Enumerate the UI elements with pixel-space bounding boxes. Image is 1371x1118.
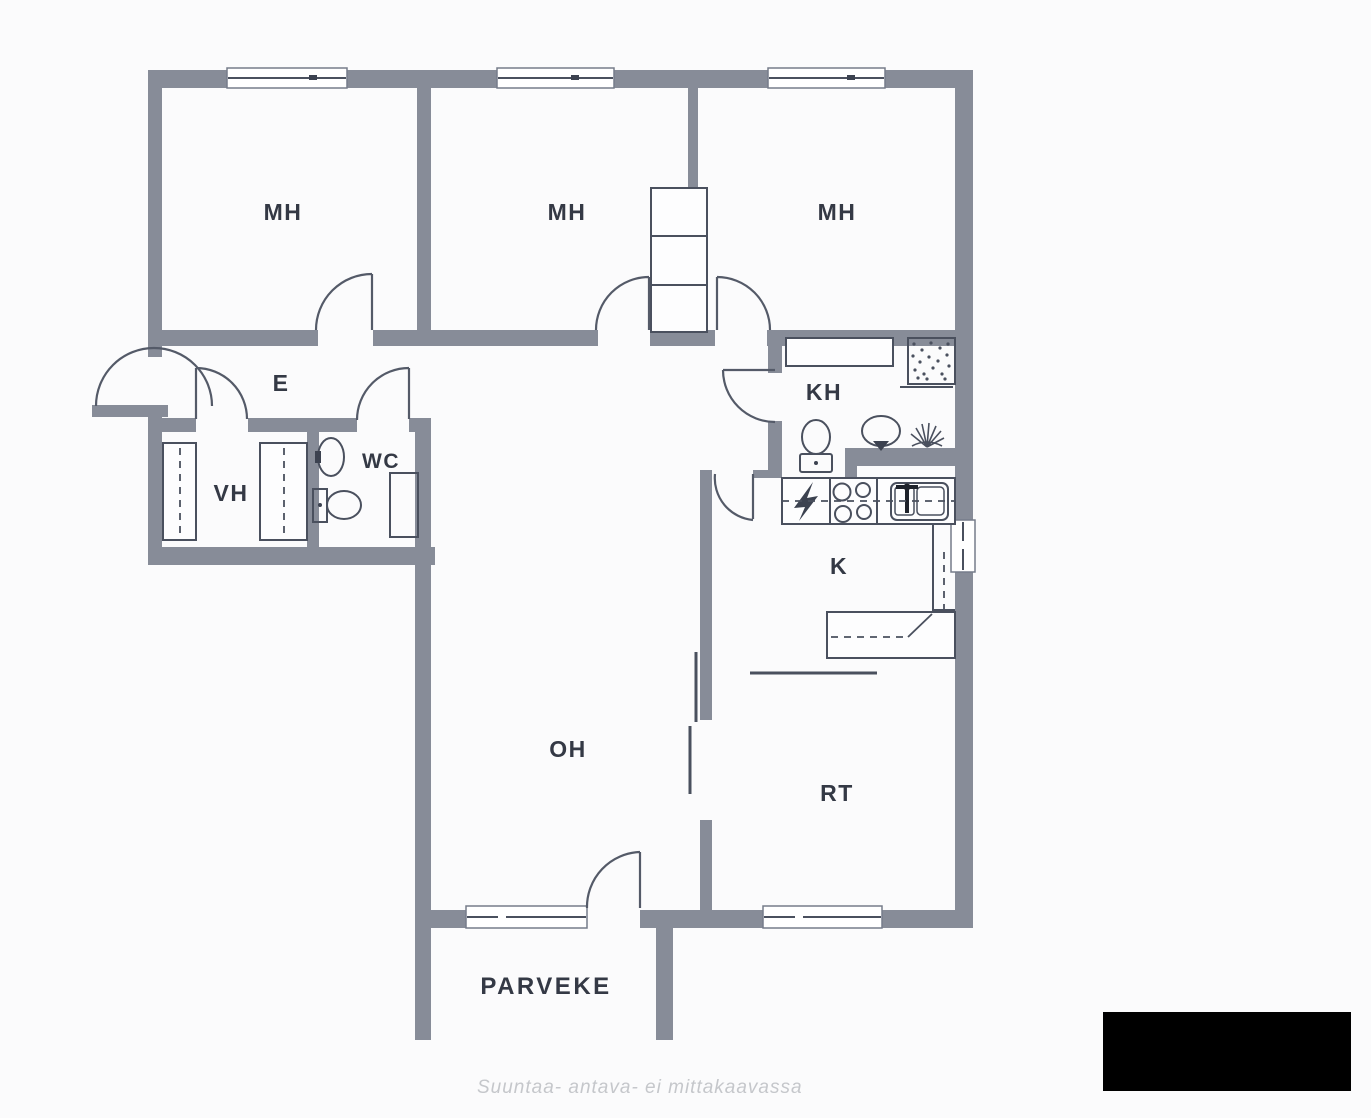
door-swing-icon <box>587 852 640 908</box>
room-label-bathroom: KH <box>806 379 842 405</box>
kitchen-counter <box>827 524 955 658</box>
shower-speckle <box>920 348 923 351</box>
room-label-balcony: PARVEKE <box>480 973 611 1000</box>
wall <box>373 330 598 346</box>
door-swing-icon <box>357 368 409 420</box>
shower-speckle <box>912 342 915 345</box>
wall <box>248 418 357 432</box>
room-label-bedroom2: MH <box>548 199 587 225</box>
shower-speckle <box>938 346 941 349</box>
wall <box>148 407 162 565</box>
toilet-icon <box>313 489 361 522</box>
cabinet-icon <box>390 473 418 537</box>
shower-speckle <box>929 341 932 344</box>
shower-speckle <box>943 377 946 380</box>
sliding-door-icon <box>690 652 696 794</box>
shower-speckle <box>946 342 949 345</box>
door-swing-icon <box>715 474 753 520</box>
shower-speckle <box>913 368 916 371</box>
wall <box>409 418 431 432</box>
shower-speckle <box>922 372 925 375</box>
wall <box>92 405 168 417</box>
room-label-closet: VH <box>214 480 249 506</box>
wall <box>753 470 782 478</box>
shower-speckle <box>916 376 919 379</box>
toilet-icon <box>800 420 832 472</box>
sink-icon <box>862 416 900 451</box>
wall <box>162 418 196 432</box>
wall <box>417 88 431 330</box>
floor-plan-svg: MH MH MH E VH WC KH K OH RT PARVEKE <box>0 0 1371 1113</box>
wall <box>845 448 857 478</box>
wall <box>955 70 973 928</box>
plan-caption: Suuntaa- antava- ei mittakaavassa <box>477 1077 803 1099</box>
room-labels: MH MH MH E VH WC KH K OH RT PARVEKE <box>214 199 857 1000</box>
room-label-wc: WC <box>362 450 400 473</box>
wall <box>688 88 698 188</box>
shower-speckle <box>945 353 948 356</box>
shower-speckle <box>940 372 943 375</box>
room-label-living: OH <box>549 736 587 762</box>
wall <box>700 820 712 910</box>
wall <box>700 470 712 720</box>
room-label-dining: RT <box>820 780 854 806</box>
door-swing-icon <box>717 277 770 330</box>
room-label-bedroom3: MH <box>818 199 857 225</box>
drain-icon <box>911 423 944 447</box>
shower-speckle <box>936 359 939 362</box>
shower-speckle <box>931 366 934 369</box>
sink-icon <box>315 438 344 476</box>
wall <box>845 448 955 466</box>
floor-plan: MH MH MH E VH WC KH K OH RT PARVEKE <box>0 0 1371 1113</box>
wall <box>148 547 435 565</box>
shower-speckle <box>925 377 928 380</box>
wall <box>162 330 318 346</box>
room-label-kitchen: K <box>830 553 848 579</box>
door-swing-icon <box>596 277 649 330</box>
room-label-entry: E <box>273 370 290 396</box>
wall <box>148 70 162 357</box>
wardrobe-icon <box>651 188 707 332</box>
door-swing-icon <box>316 274 372 330</box>
shelf-icon <box>786 338 893 366</box>
wall <box>656 928 673 1040</box>
wall <box>768 421 782 478</box>
room-label-bedroom1: MH <box>264 199 303 225</box>
door-swings-group <box>96 274 775 908</box>
shower-speckle <box>918 360 921 363</box>
shower-speckle <box>947 364 950 367</box>
redaction-box <box>1103 1012 1351 1091</box>
shower-speckle <box>927 355 930 358</box>
door-swing-icon <box>723 370 775 422</box>
shower-speckle <box>911 354 914 357</box>
